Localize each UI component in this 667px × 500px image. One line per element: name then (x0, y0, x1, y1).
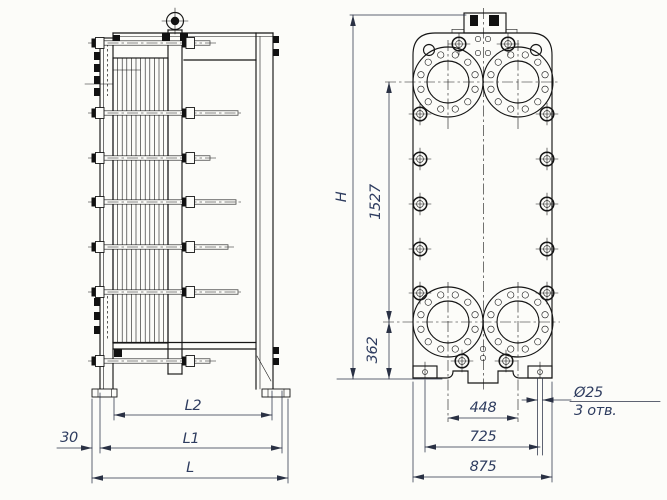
tie-bolt (88, 197, 242, 208)
dimension-H: H (334, 15, 356, 379)
port-centerlines (383, 40, 560, 422)
lifting-eye-icon (162, 8, 188, 34)
dim-label-hole-count: 3 отв. (574, 403, 617, 419)
dimension-362: 362 (365, 322, 392, 379)
dim-label-30: 30 (60, 430, 78, 446)
side-view-dimensions: L2 L1 30 L (57, 391, 288, 483)
dim-label-448: 448 (470, 400, 497, 416)
dimension-725: 725 (425, 429, 540, 450)
dimension-448: 448 (448, 400, 518, 421)
tie-bolt (88, 287, 244, 298)
fixed-frame-plate (85, 35, 122, 390)
dim-label-725: 725 (470, 429, 497, 445)
dim-label-875: 875 (470, 459, 497, 475)
rear-support-column (256, 33, 279, 389)
tie-bolt (88, 242, 234, 253)
dim-label-l2: L2 (185, 398, 202, 414)
dim-label-362: 362 (365, 337, 381, 364)
dim-label-l: L (186, 460, 194, 476)
dimension-875: 875 (413, 459, 552, 480)
tie-bolts (88, 38, 244, 367)
front-view: H 1527 362 448 (334, 8, 660, 482)
dim-label-l1: L1 (183, 431, 200, 447)
tie-bolt (88, 108, 244, 119)
dimension-L2: L2 (114, 398, 272, 418)
tie-bolt (88, 38, 216, 49)
dimension-1527: 1527 (368, 82, 392, 322)
dimension-L: L (92, 460, 288, 481)
tie-bolt (88, 153, 216, 164)
carrying-bar-section (464, 13, 506, 33)
dimension-30: 30 (57, 430, 92, 451)
dim-label-1527: 1527 (368, 183, 384, 220)
side-view-feet (92, 389, 290, 397)
tie-bolt (88, 356, 216, 367)
side-view: L2 L1 30 L (57, 8, 290, 483)
front-view-feet (413, 362, 552, 378)
technical-drawing-canvas: L2 L1 30 L (0, 0, 667, 500)
port-flanges (413, 47, 553, 357)
dim-label-hole-diameter: Ø25 (573, 385, 603, 401)
dim-label-h: H (334, 191, 350, 202)
dimension-L1: L1 (100, 431, 282, 451)
